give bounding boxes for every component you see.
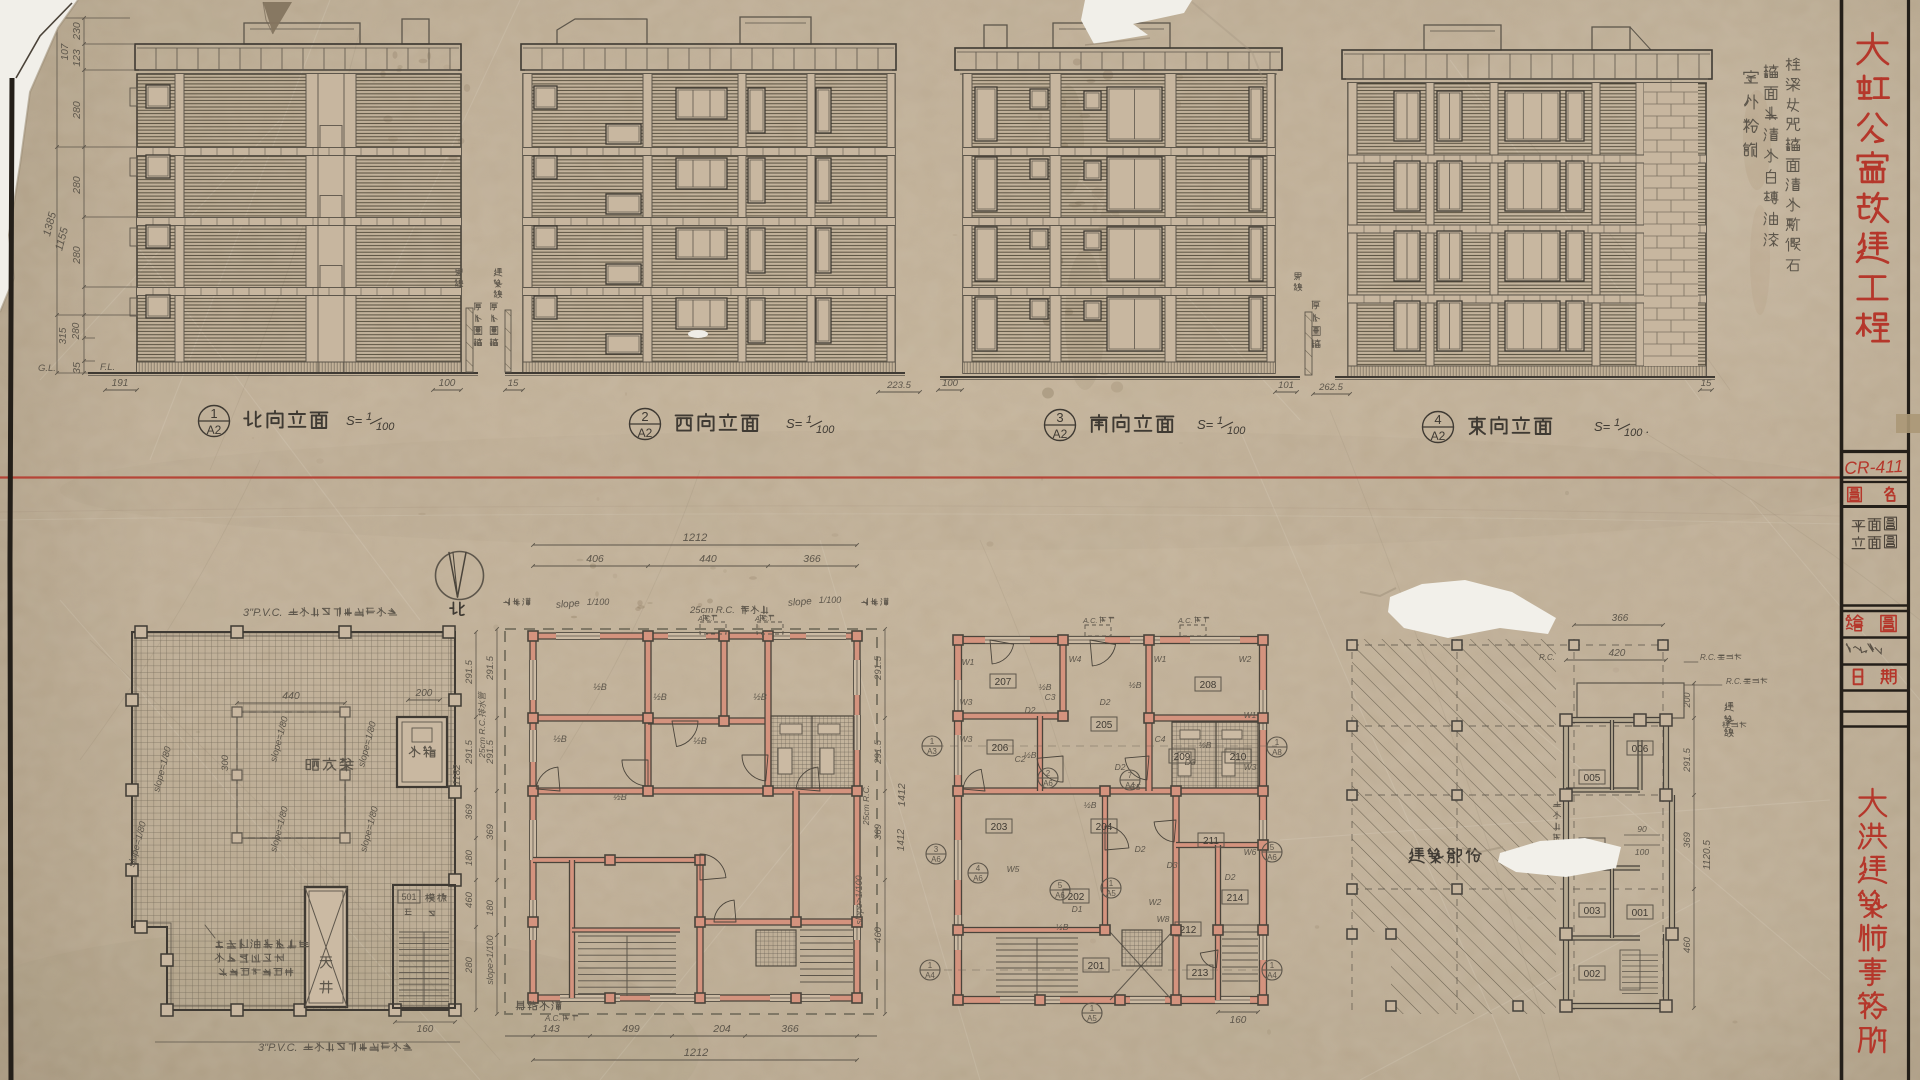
svg-text:300: 300 [220,754,231,771]
svg-text:460: 460 [1682,936,1693,953]
svg-text:15: 15 [508,378,519,389]
svg-text:002: 002 [1584,969,1601,980]
svg-text:202: 202 [1068,892,1085,903]
svg-text:1: 1 [1109,879,1114,888]
svg-text:214: 214 [1227,893,1244,904]
svg-text:1: 1 [1270,961,1275,970]
svg-text:15: 15 [1701,378,1712,389]
svg-text:D3: D3 [1167,860,1178,870]
svg-text:460: 460 [873,926,884,943]
svg-text:100: 100 [816,424,835,436]
svg-text:5: 5 [1058,881,1063,890]
svg-text:369: 369 [485,823,496,840]
svg-text:143: 143 [542,1023,560,1035]
svg-text:½B: ½B [593,682,607,692]
svg-text:1: 1 [366,411,372,423]
svg-text:F.L.: F.L. [100,362,115,373]
svg-text:W8: W8 [1157,914,1170,924]
svg-text:½B: ½B [1199,740,1212,750]
svg-text:212: 212 [1180,925,1197,936]
svg-text:291.5: 291.5 [464,659,475,684]
svg-text:160: 160 [417,1024,434,1035]
svg-text:A.C.: A.C. [754,614,770,623]
svg-text:315: 315 [58,327,69,344]
svg-text:230: 230 [71,22,83,41]
svg-text:499: 499 [622,1023,640,1035]
svg-text:D2: D2 [1025,705,1036,715]
svg-text:A2: A2 [207,423,222,437]
svg-text:C5: C5 [1130,782,1141,792]
svg-text:005: 005 [1584,773,1601,784]
svg-text:slope: slope [556,598,581,611]
svg-text:001: 001 [1632,908,1649,919]
svg-text:204: 204 [1096,822,1113,833]
svg-text:107: 107 [60,43,71,60]
svg-text:191: 191 [112,378,129,389]
svg-text:5: 5 [1270,843,1275,852]
svg-text:1: 1 [930,737,935,746]
svg-text:slope>1/100: slope>1/100 [854,875,864,924]
svg-text:25cm R.C.: 25cm R.C. [861,785,871,826]
svg-text:291.5: 291.5 [873,655,884,680]
svg-text:205: 205 [1096,720,1113,731]
svg-text:3: 3 [934,845,939,854]
svg-text:D2: D2 [1115,762,1126,772]
svg-text:slope: slope [788,596,813,609]
svg-text:½B: ½B [1056,922,1069,932]
svg-text:280: 280 [71,246,83,265]
svg-text:501: 501 [401,892,416,902]
svg-text:½B: ½B [1024,750,1037,760]
svg-text:3"P.V.C.: 3"P.V.C. [243,607,283,619]
svg-text:½B: ½B [753,692,767,702]
svg-text:½B: ½B [1129,680,1142,690]
svg-text:100: 100 [1635,847,1649,857]
svg-text:A8: A8 [1272,748,1282,757]
svg-text:1: 1 [806,414,812,426]
svg-text:A2: A2 [1053,427,1068,441]
svg-text:A6: A6 [973,874,983,883]
svg-text:1: 1 [1614,417,1620,429]
svg-text:180: 180 [464,849,475,866]
svg-text:W5: W5 [1007,864,1020,874]
svg-text:A6: A6 [1055,891,1065,900]
svg-text:W4: W4 [1069,654,1082,664]
svg-text:406: 406 [586,553,604,565]
svg-text:S=: S= [1197,417,1214,432]
svg-text:160: 160 [1230,1015,1247,1026]
svg-text:4: 4 [976,864,981,873]
svg-text:366: 366 [781,1023,799,1035]
svg-text:A5: A5 [1087,1014,1097,1023]
svg-text:A2: A2 [638,426,653,440]
svg-text:366: 366 [1612,613,1629,624]
svg-text:½B: ½B [613,792,627,802]
svg-text:4: 4 [1434,412,1441,427]
svg-text:R.C.: R.C. [1539,653,1555,662]
svg-text:460: 460 [464,891,475,908]
svg-text:W3: W3 [1244,762,1257,772]
svg-text:25cm R.C.排水管: 25cm R.C.排水管 [477,691,487,759]
svg-text:101: 101 [1278,380,1294,391]
svg-text:1212: 1212 [683,532,707,544]
svg-text:A3: A3 [927,747,937,756]
svg-text:A.C.: A.C. [1082,616,1098,625]
svg-text:.: . [1646,421,1650,436]
svg-text:1212: 1212 [684,1047,708,1059]
svg-text:440: 440 [699,553,717,565]
svg-text:1412: 1412 [896,828,907,851]
svg-text:100: 100 [376,421,395,433]
svg-text:½B: ½B [653,692,667,702]
svg-text:200: 200 [1682,692,1692,708]
svg-text:291.5: 291.5 [873,739,884,764]
svg-text:180: 180 [485,899,496,916]
svg-text:204: 204 [712,1023,731,1035]
svg-text:W2: W2 [1239,654,1252,664]
svg-text:D3: D3 [1185,757,1196,767]
svg-text:W1: W1 [1154,654,1167,664]
svg-text:291.5: 291.5 [485,655,496,680]
svg-text:A6: A6 [1043,779,1053,788]
svg-text:1: 1 [928,961,933,970]
svg-text:A4: A4 [1267,971,1277,980]
svg-text:280: 280 [464,956,475,974]
svg-text:280: 280 [71,176,83,195]
svg-text:W6: W6 [1244,847,1257,857]
svg-text:369: 369 [873,823,884,840]
svg-text:100: 100 [1227,425,1246,437]
svg-text:1: 1 [1217,415,1223,427]
svg-text:A.C.: A.C. [1177,616,1193,625]
svg-text:35: 35 [71,362,83,374]
svg-text:A6: A6 [1267,853,1277,862]
svg-text:280: 280 [71,322,82,340]
svg-text:003: 003 [1584,906,1601,917]
svg-text:291.5: 291.5 [1682,747,1693,772]
svg-text:S=: S= [786,416,803,431]
svg-text:207: 207 [995,677,1012,688]
svg-text:366: 366 [803,553,821,565]
svg-text:25cm R.C.: 25cm R.C. [689,605,735,616]
svg-text:1412: 1412 [896,783,908,807]
svg-text:C3: C3 [1045,692,1056,702]
svg-text:100: 100 [439,378,456,389]
svg-text:R.C.: R.C. [1700,653,1716,662]
svg-text:slope>1/100: slope>1/100 [485,935,495,984]
svg-text:262.5: 262.5 [1318,382,1343,393]
svg-text:A4: A4 [925,971,935,980]
svg-text:G.L.: G.L. [38,363,56,374]
svg-text:3: 3 [1056,410,1063,425]
svg-text:CR-411: CR-411 [1844,456,1904,478]
svg-text:W3: W3 [960,734,973,744]
svg-text:1/100: 1/100 [587,597,610,607]
svg-text:420: 420 [1609,648,1626,659]
svg-text:291.5: 291.5 [464,739,475,764]
svg-text:1182: 1182 [452,764,463,786]
svg-text:S=: S= [1594,419,1611,434]
svg-text:D2: D2 [1135,844,1146,854]
svg-text:A.C.: A.C. [544,1014,561,1023]
svg-text:1: 1 [1090,1004,1095,1013]
svg-text:S=: S= [346,413,363,428]
svg-text:123: 123 [71,49,83,67]
svg-text:D2: D2 [1100,697,1111,707]
svg-text:W1: W1 [1244,710,1257,720]
svg-text:369: 369 [1682,831,1693,848]
svg-text:W2: W2 [1149,897,1162,907]
svg-text:206: 206 [992,743,1009,754]
svg-text:D1: D1 [1072,904,1083,914]
svg-text:006: 006 [1632,744,1649,755]
svg-text:280: 280 [71,101,83,120]
svg-text:208: 208 [1200,680,1217,691]
svg-text:2: 2 [1046,769,1051,778]
svg-text:1: 1 [210,406,217,421]
svg-text:369: 369 [464,803,475,820]
svg-text:223.5: 223.5 [886,380,911,391]
svg-text:A6: A6 [931,855,941,864]
svg-text:100: 100 [942,378,959,389]
svg-text:211: 211 [1203,836,1219,847]
svg-text:200: 200 [415,688,433,699]
svg-text:440: 440 [282,690,300,702]
svg-text:90: 90 [1637,824,1647,834]
svg-text:7: 7 [1128,771,1133,780]
svg-text:1120.5: 1120.5 [1702,840,1713,870]
svg-text:1/100: 1/100 [819,595,842,605]
svg-text:C4: C4 [1155,734,1166,744]
svg-text:½B: ½B [1084,800,1097,810]
svg-text:R.C.: R.C. [1726,677,1742,686]
svg-text:½B: ½B [553,734,567,744]
svg-text:A2: A2 [1431,429,1446,443]
svg-text:D2: D2 [1225,872,1236,882]
svg-text:½B: ½B [693,736,707,746]
svg-text:½B: ½B [1039,682,1052,692]
svg-text:2: 2 [641,409,648,424]
svg-text:3"P.V.C.: 3"P.V.C. [258,1042,298,1054]
svg-text:W1: W1 [962,657,975,667]
svg-text:203: 203 [991,822,1008,833]
svg-text:100: 100 [1624,427,1643,439]
svg-text:A5: A5 [1106,889,1116,898]
svg-text:W3: W3 [960,697,973,707]
